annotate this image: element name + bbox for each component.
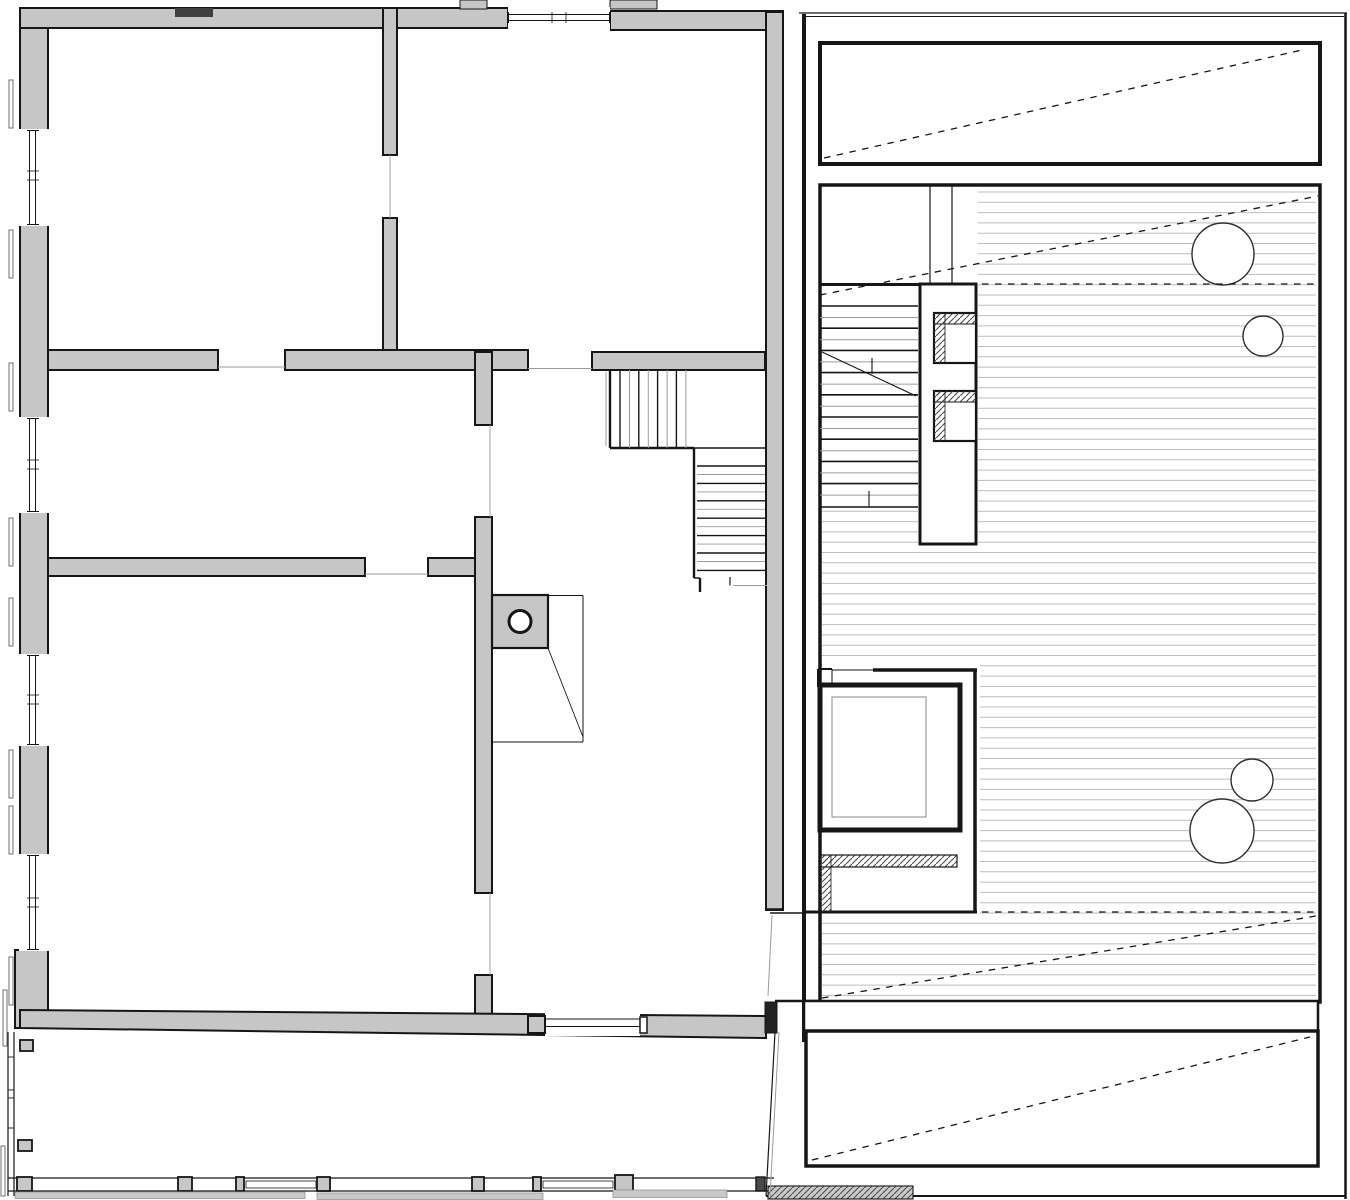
sill-mark bbox=[9, 363, 13, 411]
eave-bar bbox=[610, 0, 657, 9]
sill-mark bbox=[9, 598, 13, 646]
window-opening bbox=[508, 7, 610, 31]
planter-hatch-strip bbox=[820, 855, 831, 912]
exterior-wall-left bbox=[20, 225, 48, 418]
trees bbox=[1190, 223, 1283, 863]
counter-diagonal bbox=[548, 648, 583, 737]
tree-canopy bbox=[1243, 316, 1283, 356]
partition-wall bbox=[48, 350, 218, 370]
partition-wall bbox=[383, 8, 397, 155]
porch-post bbox=[317, 1177, 330, 1191]
sill-mark bbox=[9, 957, 13, 1005]
sill-mark bbox=[1, 1146, 5, 1196]
porch-post bbox=[756, 1177, 765, 1191]
house-openings bbox=[19, 7, 803, 1036]
partition-wall bbox=[475, 517, 492, 893]
porch-post bbox=[20, 1040, 33, 1051]
exterior-wall-left bbox=[20, 512, 48, 655]
exterior-wall-south bbox=[20, 1010, 766, 1038]
kitchen-fixture bbox=[492, 595, 583, 742]
rail-panel bbox=[246, 1181, 316, 1188]
planter-hatch-strip bbox=[820, 855, 957, 867]
porch-post bbox=[178, 1177, 192, 1191]
porch bbox=[8, 1032, 913, 1200]
bench-unit bbox=[920, 284, 976, 544]
ground-strip bbox=[15, 1192, 305, 1199]
sill-mark bbox=[9, 518, 13, 566]
porch-post bbox=[533, 1177, 541, 1191]
exterior-wall-top bbox=[610, 11, 783, 30]
partition-wall bbox=[475, 352, 492, 425]
eave-bar bbox=[460, 0, 487, 9]
window-jamb bbox=[528, 1016, 545, 1033]
partition-wall bbox=[383, 218, 397, 350]
tree-canopy bbox=[1192, 223, 1254, 285]
window-opening bbox=[19, 417, 49, 513]
exterior-wall-right bbox=[766, 12, 783, 910]
lower-terrace-rect bbox=[806, 1031, 1318, 1166]
floor-plan-page bbox=[0, 0, 1350, 1200]
bench-hatch bbox=[934, 391, 945, 441]
deck-masks bbox=[802, 184, 1319, 1033]
lintel-bar bbox=[175, 8, 213, 17]
deck-edge-band bbox=[804, 1001, 1318, 1032]
porch-post bbox=[17, 1177, 32, 1191]
flue-circle bbox=[509, 611, 531, 633]
partition-wall bbox=[48, 558, 365, 576]
ground-strip-hatched bbox=[768, 1186, 913, 1199]
window-opening bbox=[19, 854, 49, 951]
porch-edge-slant bbox=[766, 1032, 775, 1196]
window-opening bbox=[19, 129, 49, 226]
porch-post bbox=[18, 1140, 32, 1151]
window-opening bbox=[545, 1013, 640, 1036]
corner-post bbox=[765, 1002, 777, 1033]
floor-plan-canvas bbox=[0, 0, 1350, 1200]
sill-mark bbox=[9, 80, 13, 128]
roof-edge-dashed bbox=[822, 916, 1316, 998]
bench-hatch bbox=[934, 313, 945, 363]
porch-post bbox=[472, 1177, 484, 1191]
sill-mark bbox=[9, 230, 13, 278]
exterior-wall-top bbox=[20, 8, 508, 28]
tree-canopy bbox=[1190, 799, 1254, 863]
ground-strip bbox=[613, 1190, 727, 1198]
porch-edge-slant bbox=[770, 1032, 779, 1196]
planter-box bbox=[820, 685, 960, 830]
upper-roof-rect bbox=[820, 43, 1320, 164]
partition-wall bbox=[592, 352, 765, 370]
house-walls bbox=[15, 0, 783, 1038]
site-marks bbox=[1, 80, 13, 1196]
sill-mark bbox=[3, 990, 7, 1046]
exterior-wall-left bbox=[20, 745, 48, 855]
ground-strip bbox=[317, 1193, 543, 1200]
interior-stair bbox=[606, 370, 767, 592]
porch-post bbox=[236, 1177, 244, 1191]
window-jamb bbox=[640, 1017, 647, 1033]
door-leaf bbox=[768, 915, 772, 996]
porch-post bbox=[615, 1175, 633, 1191]
window-opening bbox=[19, 654, 49, 746]
tree-canopy bbox=[1231, 759, 1273, 801]
rail-panel bbox=[543, 1181, 613, 1188]
sill-mark bbox=[9, 750, 13, 798]
sill-mark bbox=[9, 806, 13, 854]
